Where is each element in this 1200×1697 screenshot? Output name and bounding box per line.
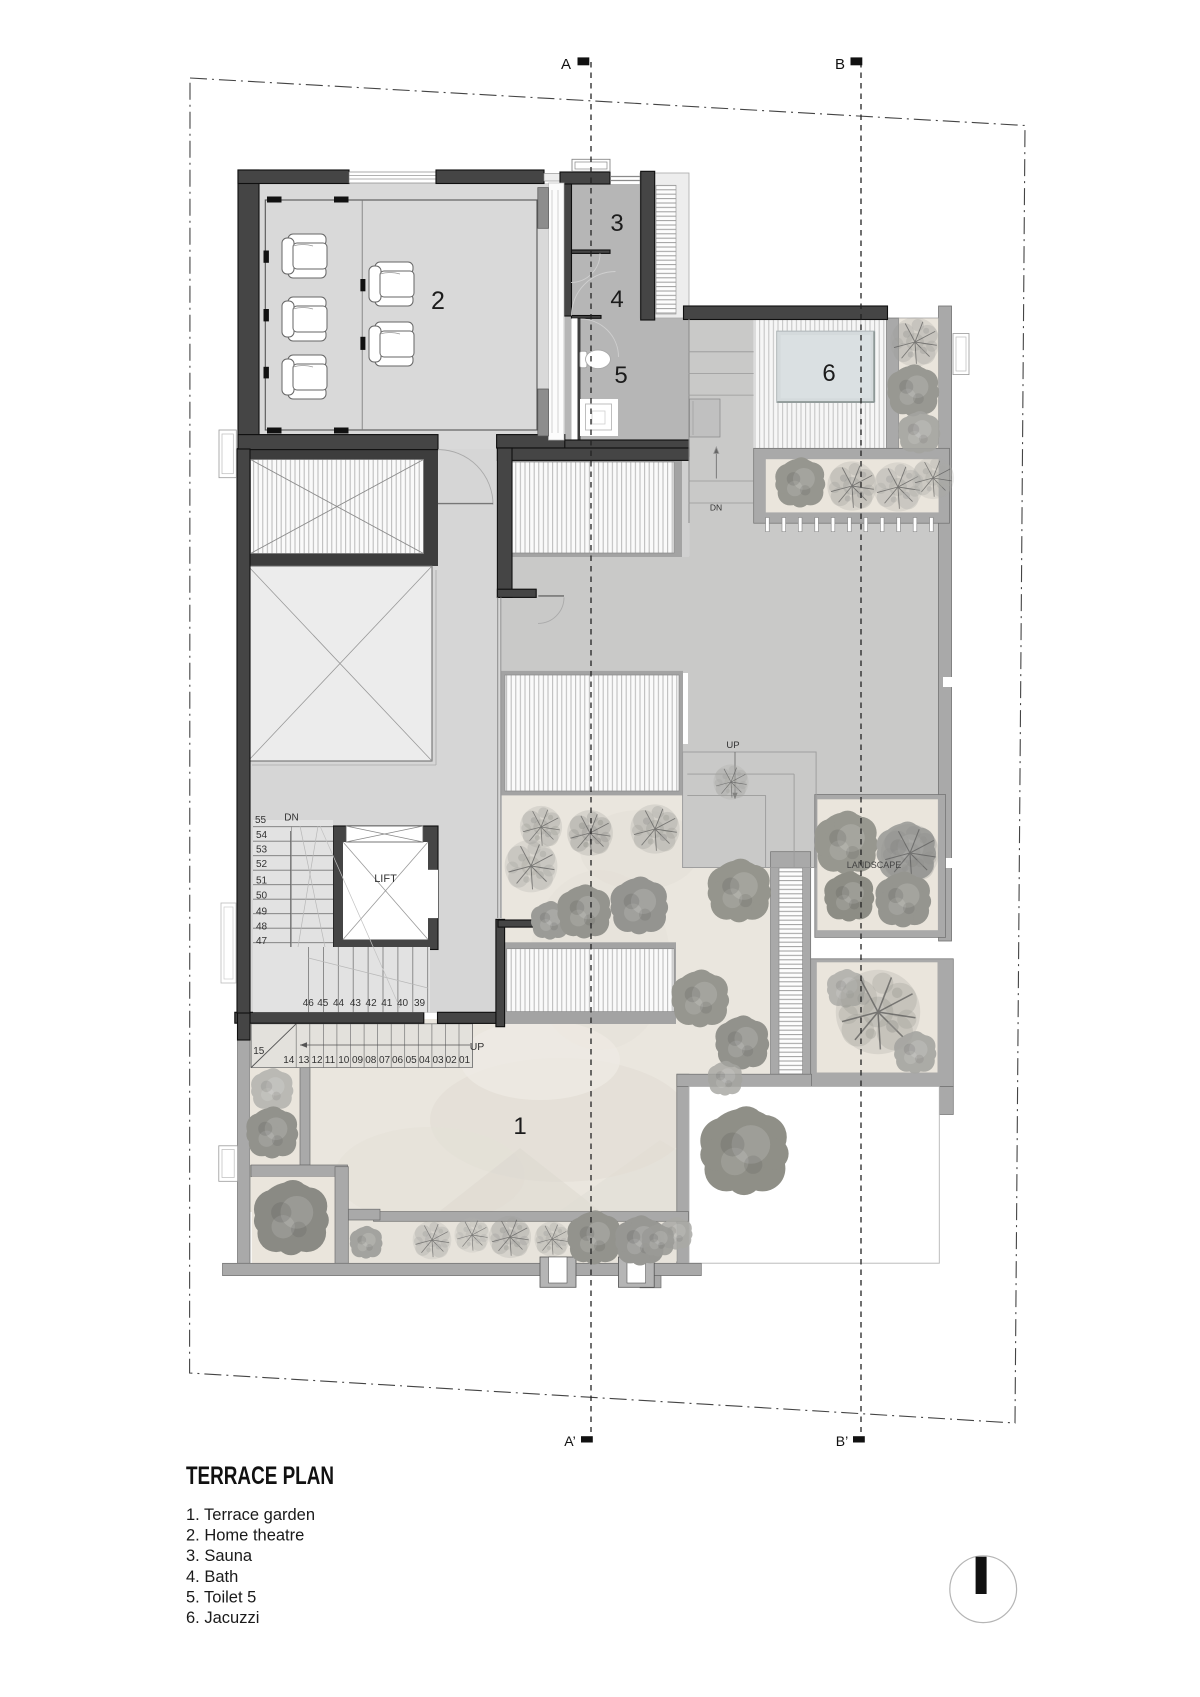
svg-text:07: 07 [379, 1055, 391, 1066]
svg-text:12: 12 [311, 1055, 323, 1066]
svg-text:2. Home theatre: 2. Home theatre [186, 1527, 304, 1545]
svg-text:TERRACE PLAN: TERRACE PLAN [186, 1462, 334, 1490]
svg-text:51: 51 [256, 876, 268, 887]
svg-text:15: 15 [253, 1046, 265, 1057]
svg-text:DN: DN [284, 813, 298, 824]
svg-text:B: B [835, 56, 845, 73]
svg-text:53: 53 [256, 845, 268, 856]
svg-text:46: 46 [303, 998, 315, 1009]
svg-text:44: 44 [333, 998, 345, 1009]
svg-text:01: 01 [459, 1055, 471, 1066]
svg-text:06: 06 [392, 1055, 404, 1066]
svg-text:55: 55 [255, 815, 267, 826]
svg-text:50: 50 [256, 891, 268, 902]
svg-text:08: 08 [365, 1055, 377, 1066]
svg-text:13: 13 [298, 1055, 310, 1066]
svg-text:11: 11 [325, 1055, 336, 1066]
svg-text:1. Terrace garden: 1. Terrace garden [186, 1506, 315, 1524]
svg-text:3: 3 [610, 210, 623, 237]
svg-text:05: 05 [406, 1055, 418, 1066]
svg-text:43: 43 [350, 998, 362, 1009]
svg-text:6: 6 [822, 360, 835, 387]
svg-text:52: 52 [256, 859, 268, 870]
svg-text:03: 03 [432, 1055, 444, 1066]
svg-text:6. Jacuzzi: 6. Jacuzzi [186, 1609, 259, 1627]
svg-text:40: 40 [397, 998, 409, 1009]
svg-text:09: 09 [352, 1055, 364, 1066]
svg-text:A’: A’ [564, 1433, 575, 1449]
svg-text:DN: DN [710, 503, 722, 513]
svg-text:10: 10 [338, 1055, 350, 1066]
svg-text:02: 02 [446, 1055, 458, 1066]
svg-text:1: 1 [513, 1113, 526, 1140]
svg-text:A: A [561, 56, 571, 73]
svg-text:47: 47 [256, 936, 268, 947]
svg-text:B’: B’ [836, 1433, 848, 1449]
svg-text:45: 45 [317, 998, 329, 1009]
svg-text:4: 4 [610, 286, 623, 313]
svg-text:UP: UP [726, 740, 739, 751]
svg-text:42: 42 [366, 998, 378, 1009]
svg-text:LANDSCAPE: LANDSCAPE [847, 860, 902, 870]
svg-text:04: 04 [419, 1055, 431, 1066]
svg-text:41: 41 [381, 998, 393, 1009]
svg-text:54: 54 [256, 830, 268, 841]
svg-text:3. Sauna: 3. Sauna [186, 1547, 253, 1565]
svg-text:LIFT: LIFT [374, 873, 397, 885]
svg-text:5: 5 [614, 362, 627, 389]
svg-text:4. Bath: 4. Bath [186, 1568, 238, 1586]
svg-text:49: 49 [256, 907, 268, 918]
svg-text:UP: UP [470, 1041, 485, 1053]
svg-text:2: 2 [431, 287, 445, 315]
svg-text:14: 14 [283, 1055, 295, 1066]
svg-text:5. Toilet 5: 5. Toilet 5 [186, 1588, 256, 1606]
svg-text:48: 48 [256, 922, 268, 933]
svg-text:39: 39 [414, 998, 426, 1009]
